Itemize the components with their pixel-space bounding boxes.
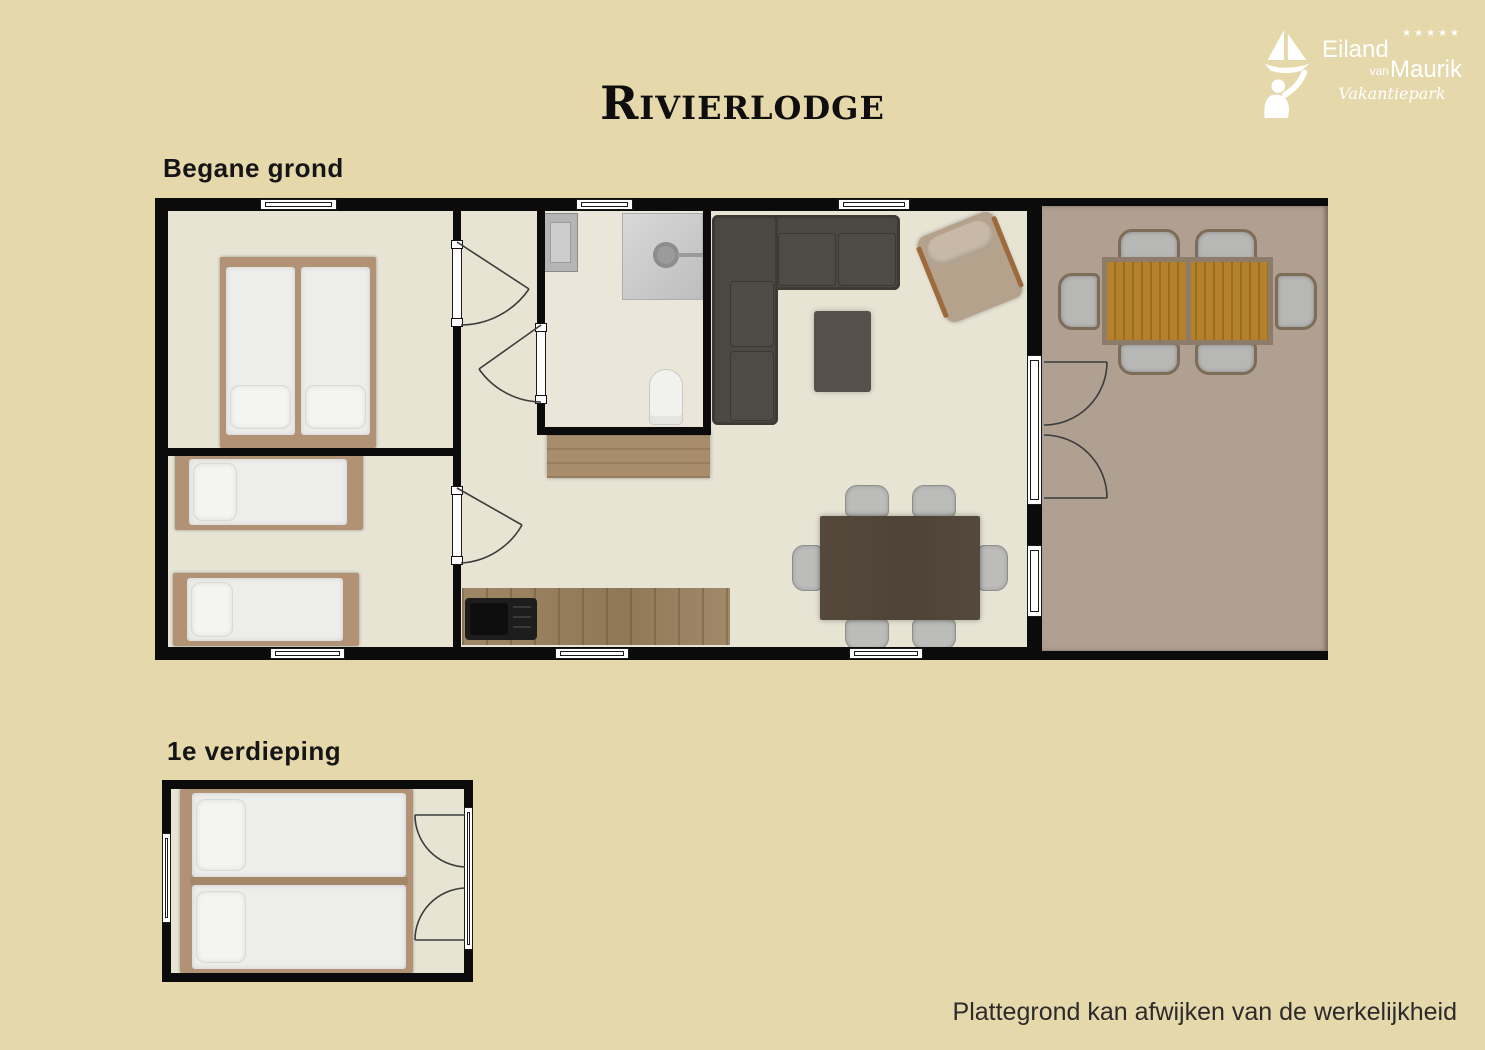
bathroom-wall xyxy=(537,427,711,435)
logo-name-line2: vanMaurik xyxy=(1322,60,1462,81)
exterior-wall xyxy=(162,780,171,833)
door-leaf xyxy=(452,488,462,563)
dining-chair xyxy=(845,485,889,517)
sofa-cushion xyxy=(778,233,836,286)
bed-rail xyxy=(190,877,408,885)
pillow xyxy=(193,463,237,521)
first-floor-plan xyxy=(162,780,473,982)
picnic-table xyxy=(1102,257,1273,345)
terrace-chair xyxy=(1058,273,1100,330)
bathroom-wall xyxy=(537,211,545,325)
door-leaf xyxy=(452,242,462,325)
window xyxy=(270,648,345,659)
window xyxy=(464,807,473,950)
shower-arm xyxy=(677,253,703,257)
dining-chair xyxy=(912,485,956,517)
window xyxy=(555,648,629,659)
pillow xyxy=(230,385,291,429)
exterior-wall xyxy=(162,923,171,982)
sideboard-cabinet xyxy=(547,430,710,478)
logo-maurik: Maurik xyxy=(1390,56,1462,83)
sailboat-person-icon xyxy=(1256,28,1314,120)
toilet xyxy=(649,369,683,425)
exterior-wall xyxy=(1027,198,1042,355)
double-single-beds xyxy=(180,789,413,973)
terrace-chair xyxy=(1275,273,1317,330)
exterior-wall xyxy=(162,780,473,789)
pillow xyxy=(196,891,246,963)
single-bed xyxy=(175,454,363,530)
interior-wall xyxy=(453,211,461,242)
ground-floor-plan xyxy=(155,198,1332,660)
logo-van: van xyxy=(1370,64,1389,78)
terrace-chair xyxy=(1195,342,1257,375)
sofa-cushion xyxy=(838,233,896,286)
bathroom-wall xyxy=(703,211,711,435)
terrace-door-frame xyxy=(1027,355,1042,505)
bathroom-sink xyxy=(543,213,578,272)
window xyxy=(162,833,171,923)
window xyxy=(576,199,633,210)
exterior-wall xyxy=(464,780,473,807)
first-floor-label: 1e verdieping xyxy=(167,736,341,767)
exterior-wall xyxy=(1027,617,1042,660)
window xyxy=(838,199,910,210)
interior-wall xyxy=(168,448,461,456)
double-single-beds xyxy=(220,257,376,448)
pillow xyxy=(196,799,246,871)
logo-text: ★★★★★ Eiland vanMaurik Vakantiepark xyxy=(1322,28,1462,124)
pillow xyxy=(191,582,233,637)
dining-chair xyxy=(845,619,889,650)
park-logo: ★★★★★ Eiland vanMaurik Vakantiepark xyxy=(1256,28,1462,124)
sink-drainer xyxy=(513,606,531,632)
logo-subtitle: Vakantiepark xyxy=(1322,84,1462,103)
door-leaf xyxy=(536,325,546,402)
pillow xyxy=(305,385,366,429)
window xyxy=(260,199,337,210)
shower-drain xyxy=(653,242,679,268)
disclaimer-text: Plattegrond kan afwijken van de werkelij… xyxy=(953,998,1457,1027)
kitchen-sink xyxy=(465,598,537,640)
exterior-wall xyxy=(464,950,473,982)
ground-floor-label: Begane grond xyxy=(163,153,344,184)
exterior-wall xyxy=(155,198,168,660)
window xyxy=(849,648,923,659)
interior-wall xyxy=(453,325,461,488)
interior-wall xyxy=(453,563,461,647)
terrace-chair xyxy=(1118,342,1180,375)
shower xyxy=(622,213,703,300)
corner-sofa-chaise xyxy=(712,215,778,425)
terrace-wall xyxy=(1042,198,1328,206)
page: Rivierlodge ★★★★★ Eiland vanMaurik Vakan… xyxy=(0,0,1485,1050)
terrace-wall xyxy=(1042,651,1328,660)
coffee-table-rug xyxy=(814,311,871,392)
dining-chair xyxy=(912,619,956,650)
exterior-wall xyxy=(1027,505,1042,545)
dining-table xyxy=(820,516,980,620)
sofa-cushion xyxy=(730,281,774,347)
dining-chair xyxy=(792,545,822,591)
sink-basin xyxy=(470,603,508,635)
dining-chair xyxy=(978,545,1008,591)
single-bed xyxy=(173,573,359,646)
window xyxy=(1027,545,1042,617)
exterior-wall xyxy=(162,973,473,982)
sofa-cushion xyxy=(730,351,774,421)
